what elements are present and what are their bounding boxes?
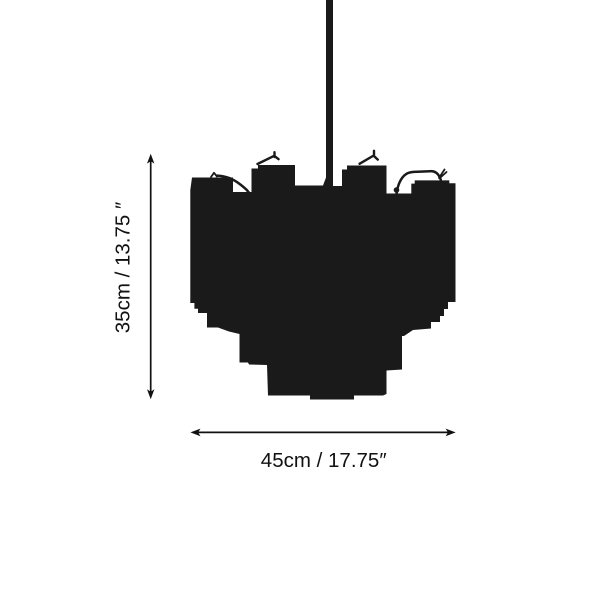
svg-text:35cm / 13.75 ″: 35cm / 13.75 ″ [112,202,135,333]
svg-text:45cm / 17.75″: 45cm / 17.75″ [261,449,387,472]
